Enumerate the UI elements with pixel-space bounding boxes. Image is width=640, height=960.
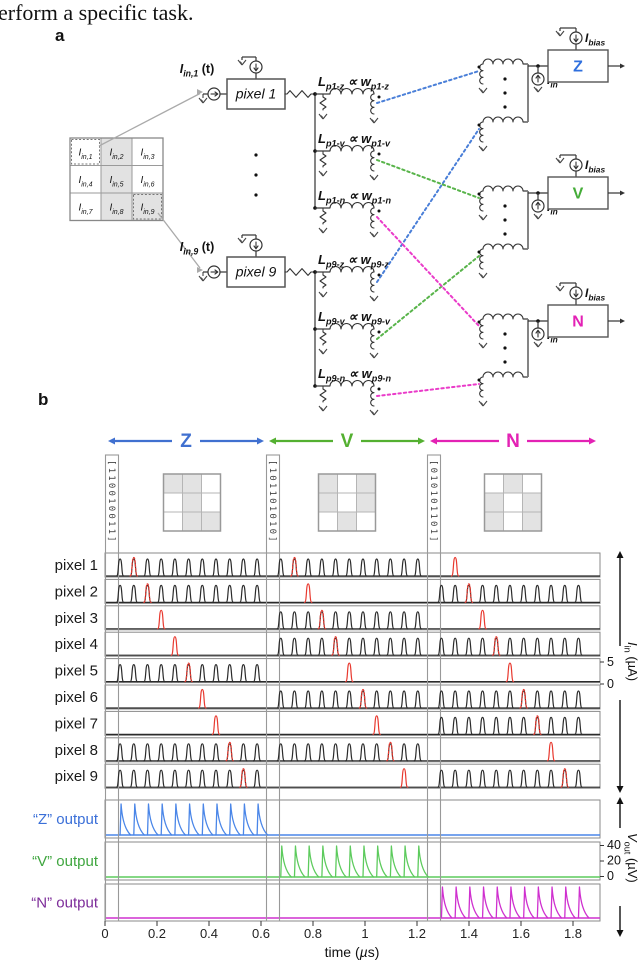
pattern-grid-Z bbox=[164, 474, 221, 531]
output-row-label: “N” output bbox=[31, 895, 99, 912]
inductor-label: Lp1-v ∝ wp1-v bbox=[318, 131, 391, 149]
unit-letter: Z bbox=[573, 59, 583, 76]
pixel-row: pixel 4 bbox=[55, 632, 600, 656]
grid-cell: Iin,1 bbox=[70, 138, 101, 166]
iin-axis-label: Iin (µA) bbox=[623, 642, 640, 681]
pixel-row: pixel 7 bbox=[55, 711, 600, 735]
output-unit-V: IinIbiasV bbox=[478, 155, 626, 278]
time-axis: 00.20.40.60.811.21.41.61.8time (µs) bbox=[101, 921, 582, 960]
pixel-row: pixel 3 bbox=[55, 606, 600, 630]
time-tick-label: 0.2 bbox=[148, 926, 166, 941]
grid-cell: Iin,3 bbox=[132, 138, 163, 166]
vout-tick: 40 bbox=[607, 838, 621, 852]
vout-tick: 0 bbox=[607, 869, 614, 883]
grid-cell: Iin,4 bbox=[70, 166, 101, 194]
coupling-lines bbox=[377, 71, 479, 396]
pattern-grid-N bbox=[485, 474, 542, 531]
inductor-label: Lp9-n ∝ wp9-n bbox=[318, 366, 391, 384]
inductor-label: Lp1-z ∝ wp1-z bbox=[318, 74, 389, 92]
iin-tick: 0 bbox=[607, 677, 614, 691]
time-tick-label: 1 bbox=[361, 926, 368, 941]
time-tick-label: 1.2 bbox=[408, 926, 426, 941]
inductor-label: Lp9-z ∝ wp9-z bbox=[318, 252, 389, 270]
pixel-row-label: pixel 2 bbox=[55, 583, 98, 600]
weight-branch: Lp1-v ∝ wp1-v bbox=[313, 131, 391, 180]
vout-axis-label: Vout (µV) bbox=[623, 833, 640, 883]
grid-cell: Iin,6 bbox=[132, 166, 163, 194]
pixel-row-label: pixel 6 bbox=[55, 689, 98, 706]
input-current-axis: 50Iin (µA) bbox=[600, 551, 640, 793]
pixel-row-label: pixel 5 bbox=[55, 663, 98, 680]
time-tick-label: 0.6 bbox=[252, 926, 270, 941]
output-row-label: “Z” output bbox=[33, 811, 99, 828]
section-label: Z bbox=[180, 431, 192, 452]
pixel-row: pixel 6 bbox=[55, 685, 600, 709]
output-row-label: “V” output bbox=[32, 853, 99, 870]
pixel-block: Iin,1 (t)pixel 1Lp1-z ∝ wp1-zLp1-v ∝ wp1… bbox=[180, 57, 392, 237]
binary-label: [101101010] bbox=[267, 460, 277, 544]
section-arrow-N: N bbox=[430, 431, 596, 452]
inductor-label: Lp9-v ∝ wp9-v bbox=[318, 309, 391, 327]
output-row-N: “N” output bbox=[31, 884, 600, 921]
unit-letter: V bbox=[573, 186, 584, 203]
grid-cell: Iin,5 bbox=[101, 166, 132, 194]
time-tick-label: 0 bbox=[101, 926, 108, 941]
section-label: N bbox=[506, 431, 520, 452]
pixel-row-label: pixel 7 bbox=[55, 715, 98, 732]
weight-branch: Lp9-v ∝ wp9-v bbox=[313, 309, 391, 358]
input-grid: Iin,1Iin,2Iin,3Iin,4Iin,5Iin,6Iin,7Iin,8… bbox=[70, 138, 163, 221]
unit-letter: N bbox=[572, 314, 584, 331]
time-tick-label: 0.4 bbox=[200, 926, 218, 941]
grid-cell: Iin,7 bbox=[70, 193, 101, 221]
pixel-block: Iin,9 (t)pixel 9Lp9-z ∝ wp9-zLp9-v ∝ wp9… bbox=[180, 235, 392, 415]
ibias-label: Ibias bbox=[585, 31, 605, 48]
inductor-label: Lp1-n ∝ wp1-n bbox=[318, 188, 391, 206]
binary-label: [010101101] bbox=[428, 460, 438, 544]
ibias-label: Ibias bbox=[585, 286, 605, 303]
figure-canvas: Iin,1Iin,2Iin,3Iin,4Iin,5Iin,6Iin,7Iin,8… bbox=[0, 0, 640, 960]
grid-cell: Iin,9 bbox=[132, 193, 163, 221]
pixel-row-label: pixel 8 bbox=[55, 742, 98, 759]
output-unit-Z: IinIbiasZ bbox=[478, 28, 626, 151]
pixel-box-label: pixel 1 bbox=[235, 86, 276, 102]
weight-branch: Lp1-z ∝ wp1-z bbox=[313, 74, 389, 123]
pixel-box-label: pixel 9 bbox=[235, 264, 277, 280]
grid-cell: Iin,8 bbox=[101, 193, 132, 221]
pattern-grid-V bbox=[319, 474, 376, 531]
time-tick-label: 1.8 bbox=[564, 926, 582, 941]
section-arrow-Z: Z bbox=[108, 431, 264, 452]
output-voltage-axis: 40200Vout (µV) bbox=[600, 797, 640, 937]
figure-page: erform a specific task. a b Iin,1Iin,2Ii… bbox=[0, 0, 640, 960]
section-label: V bbox=[341, 431, 354, 452]
pixel-input-label: Iin,1 (t) bbox=[180, 62, 215, 79]
pixel-row-label: pixel 4 bbox=[55, 636, 98, 653]
time-tick-label: 0.8 bbox=[304, 926, 322, 941]
time-tick-label: 1.4 bbox=[460, 926, 478, 941]
panel-b-chart: ZVNpixel 1pixel 2pixel 3pixel 4pixel 5pi… bbox=[31, 431, 640, 960]
binary-label: [110010011] bbox=[106, 460, 116, 544]
pixel-row-label: pixel 3 bbox=[55, 610, 98, 627]
pixel-row-label: pixel 9 bbox=[55, 768, 98, 785]
vout-tick: 20 bbox=[607, 854, 621, 868]
weight-branch: Lp1-n ∝ wp1-n bbox=[313, 188, 391, 237]
ibias-label: Ibias bbox=[585, 158, 605, 175]
output-unit-N: IinIbiasN bbox=[478, 283, 626, 406]
time-axis-label: time (µs) bbox=[325, 944, 380, 960]
weight-branch: Lp9-z ∝ wp9-z bbox=[313, 252, 389, 301]
panel-a-schematic: Iin,1Iin,2Iin,3Iin,4Iin,5Iin,6Iin,7Iin,8… bbox=[70, 28, 625, 415]
pixel-input-label: Iin,9 (t) bbox=[180, 240, 215, 257]
weight-branch: Lp9-n ∝ wp9-n bbox=[313, 366, 391, 415]
pixel-row-label: pixel 1 bbox=[55, 557, 98, 574]
time-tick-label: 1.6 bbox=[512, 926, 530, 941]
section-arrow-V: V bbox=[269, 431, 425, 452]
iin-tick: 5 bbox=[607, 655, 614, 669]
